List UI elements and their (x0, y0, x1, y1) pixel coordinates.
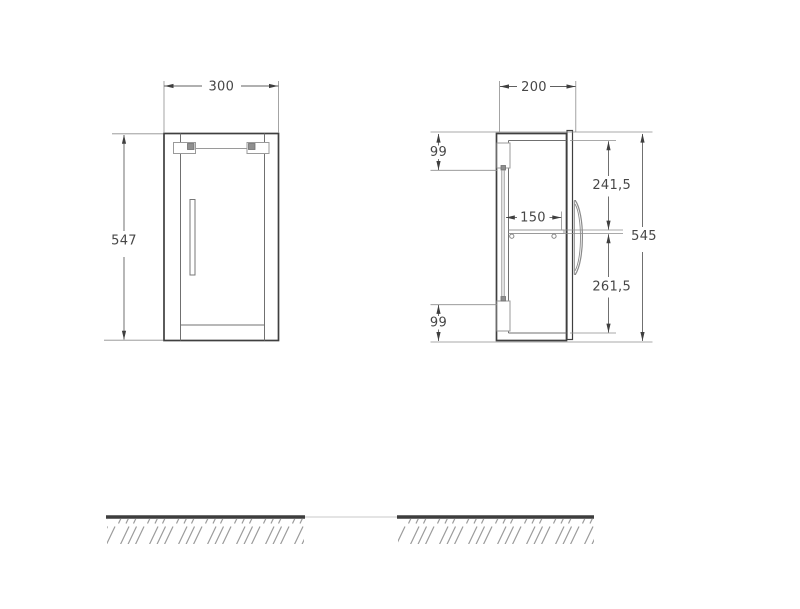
arrowhead-right (552, 215, 561, 219)
dimension-top-rail-offset: 99 (430, 134, 497, 171)
arrowhead-left (506, 215, 515, 219)
dimension-front-width: 300 (164, 79, 279, 133)
above-shelf-label: 241,5 (592, 178, 631, 193)
side-top-bracket (497, 143, 510, 168)
dimension-shelf-depth: 150 (506, 210, 562, 229)
front-door-handle (190, 200, 195, 276)
arrowhead-right (567, 84, 576, 88)
side-bottom-bracket (497, 301, 510, 331)
handle-outer-curve (575, 201, 582, 275)
ground-hatching (106, 517, 594, 544)
arrowhead-down (436, 332, 440, 341)
dimension-below-shelf: 261,5 (570, 234, 631, 333)
side-top-bracket-block (501, 166, 506, 171)
front-cabinet-outline (164, 134, 279, 341)
arrowhead-down (606, 324, 610, 333)
front-hanging-hardware (174, 143, 270, 154)
side-view-dimensions: 200 99 99 241 (430, 80, 657, 342)
technical-drawing: 300 547 (0, 0, 800, 609)
arrowhead-up (640, 134, 644, 143)
arrowhead-up (606, 234, 610, 243)
side-shelf (509, 230, 565, 238)
hanging-bracket-right-block (249, 144, 256, 150)
drawing-page: 300 547 (0, 0, 800, 609)
side-depth-label: 200 (521, 80, 547, 95)
arrowhead-up (436, 134, 440, 143)
bottom-rail-offset-label: 99 (430, 315, 447, 330)
handle-inner-curve (575, 204, 580, 271)
hanging-bracket-left-block (188, 144, 195, 150)
side-door-panel (567, 131, 573, 340)
dimension-side-depth: 200 (500, 80, 576, 132)
top-rail-offset-label: 99 (430, 145, 447, 160)
front-width-label: 300 (208, 79, 234, 94)
below-shelf-label: 261,5 (592, 280, 631, 295)
arrowhead-up (606, 141, 610, 150)
arrowhead-down (436, 161, 440, 170)
shelf-pin (552, 234, 556, 238)
arrowhead-down (640, 332, 644, 341)
arrowhead-left (500, 84, 509, 88)
side-bottom-bracket-block (501, 297, 506, 302)
arrowhead-down (606, 221, 610, 230)
hatch-area-right (398, 519, 594, 544)
dimension-side-height: 545 (631, 134, 657, 341)
side-height-label: 545 (631, 229, 657, 244)
front-height-label: 547 (111, 234, 137, 249)
shelf-depth-label: 150 (520, 210, 546, 225)
side-door-handle (574, 201, 582, 275)
dimension-bottom-rail-offset: 99 (430, 305, 497, 341)
side-view (497, 131, 583, 341)
arrowhead-up (436, 305, 440, 314)
arrowhead-left (165, 84, 174, 88)
dimension-front-height: 547 (104, 134, 163, 340)
front-view (164, 134, 279, 341)
hatch-area-left (107, 519, 304, 544)
arrowhead-down (122, 331, 126, 340)
arrowhead-right (269, 84, 278, 88)
shelf-pin (510, 234, 514, 238)
arrowhead-up (122, 135, 126, 144)
